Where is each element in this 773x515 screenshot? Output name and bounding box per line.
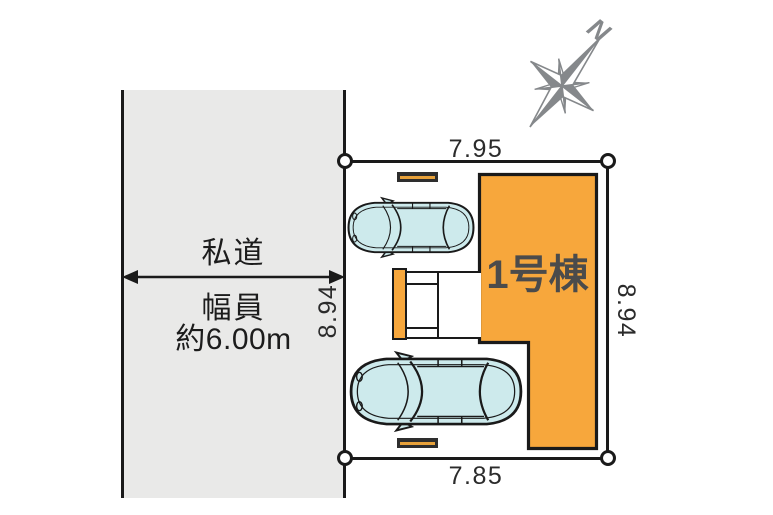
dimension-right: 8.94 xyxy=(614,271,638,351)
compass-north-label: N xyxy=(582,12,616,48)
compass-star xyxy=(498,11,632,152)
gate-bar xyxy=(397,172,438,182)
building-label: 1号棟 xyxy=(477,251,598,299)
road-width-value: 約6.00m xyxy=(121,314,346,358)
dimension-left: 8.94 xyxy=(316,271,340,351)
entrance-step-line xyxy=(407,327,437,330)
entrance-step-line xyxy=(407,283,437,286)
plot-boundary-bottom xyxy=(344,457,609,460)
gate-bar xyxy=(397,438,438,448)
site-plan-diagram: 私道 幅員 約6.00m 7.95 7.85 8.94 8.94 1号棟 xyxy=(0,0,773,515)
gate-bar-stripe xyxy=(400,176,435,179)
parked-car-small xyxy=(347,196,475,259)
compass-rose-icon: N xyxy=(506,8,622,142)
plot-boundary-right xyxy=(606,160,609,460)
parked-car-large xyxy=(349,350,523,433)
entrance-step-line xyxy=(437,273,440,337)
entrance-steps xyxy=(405,271,481,339)
dimension-bottom: 7.85 xyxy=(344,462,608,491)
gate-bar-stripe xyxy=(400,442,435,445)
arrow-head-left-icon xyxy=(122,270,138,284)
